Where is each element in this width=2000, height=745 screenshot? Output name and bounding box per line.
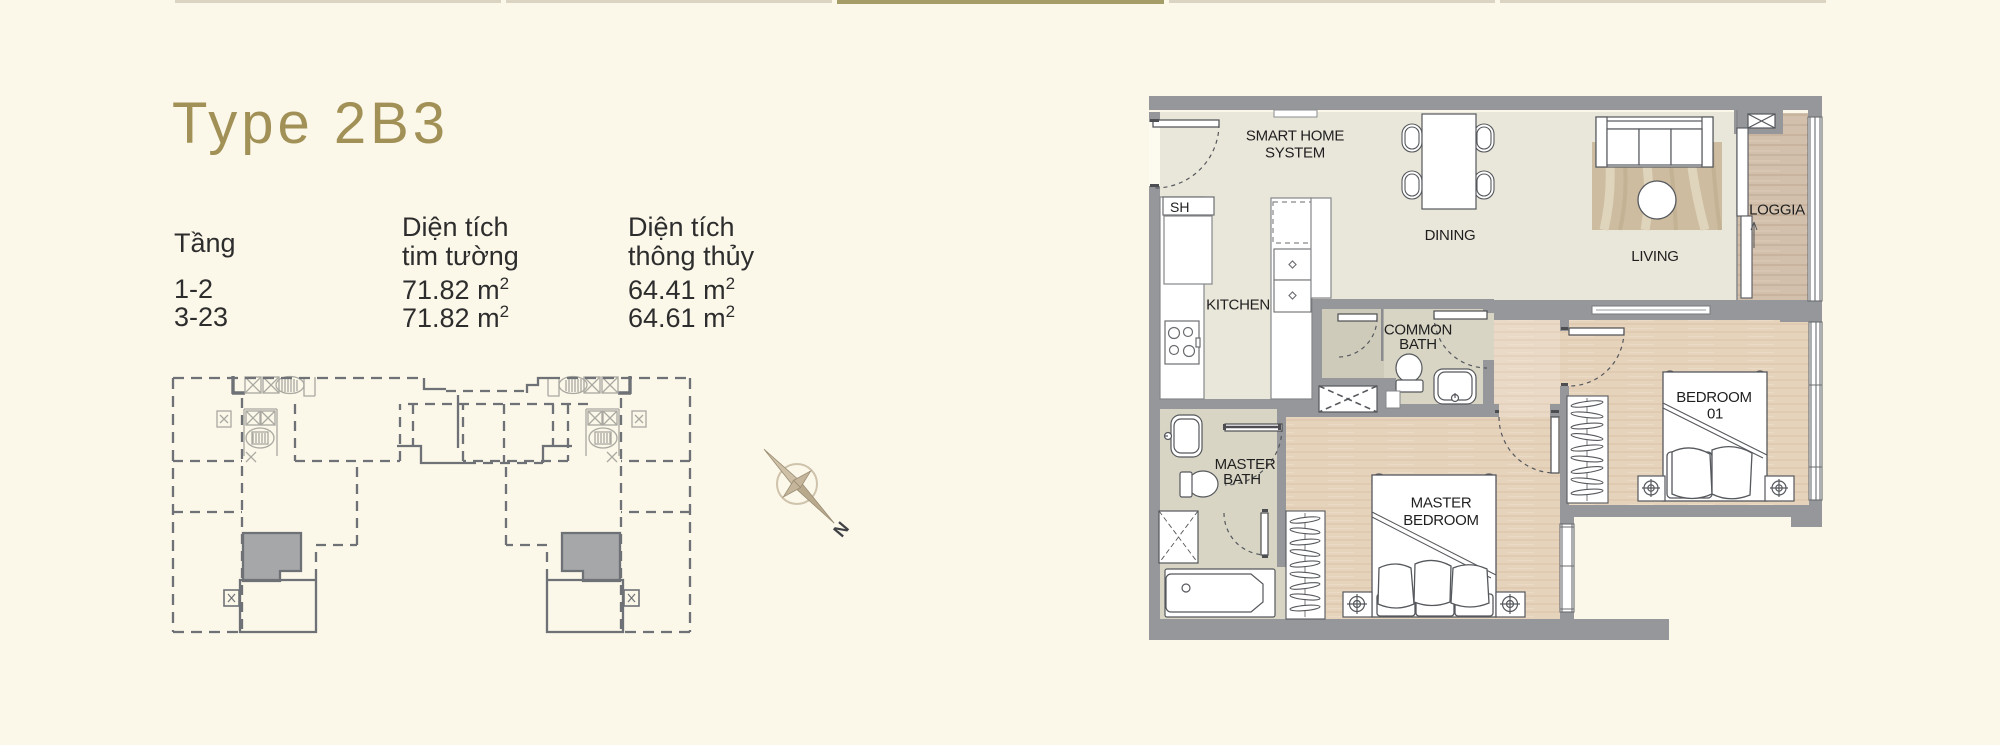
svg-text:SMART HOME: SMART HOME — [1246, 128, 1344, 145]
svg-text:BATH: BATH — [1223, 471, 1261, 488]
svg-text:LIVING: LIVING — [1631, 248, 1678, 265]
svg-text:BATH: BATH — [1399, 336, 1437, 353]
svg-text:DINING: DINING — [1425, 227, 1476, 244]
svg-text:BEDROOM: BEDROOM — [1676, 389, 1751, 406]
svg-text:MASTER: MASTER — [1411, 495, 1472, 512]
svg-text:01: 01 — [1707, 406, 1723, 423]
svg-text:BEDROOM: BEDROOM — [1403, 512, 1478, 529]
svg-text:SYSTEM: SYSTEM — [1265, 145, 1325, 162]
svg-text:LOGGIA: LOGGIA — [1749, 202, 1805, 219]
svg-text:KITCHEN: KITCHEN — [1206, 297, 1270, 314]
svg-text:SH: SH — [1170, 199, 1189, 215]
